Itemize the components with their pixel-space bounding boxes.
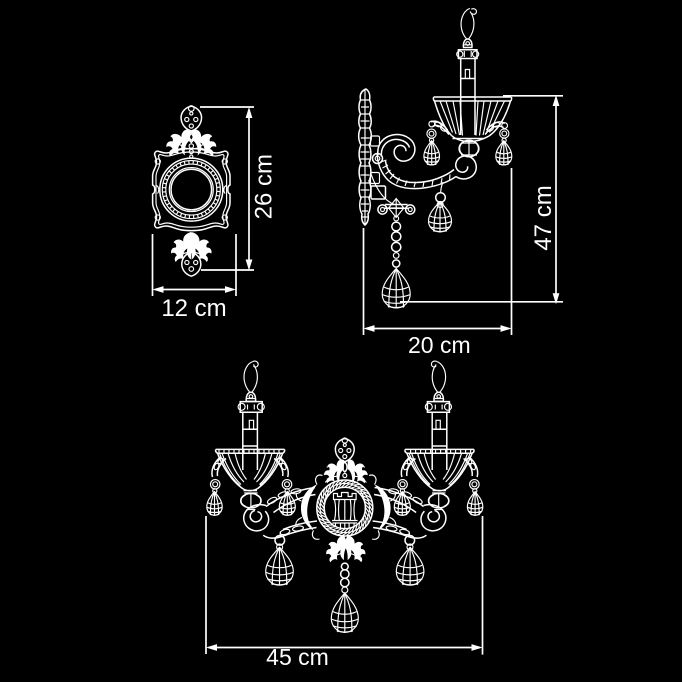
svg-text:45 cm: 45 cm <box>266 644 329 670</box>
svg-text:12 cm: 12 cm <box>161 295 226 322</box>
svg-text:26 cm: 26 cm <box>251 154 278 219</box>
svg-text:20 cm: 20 cm <box>408 332 471 358</box>
svg-text:47 cm: 47 cm <box>530 185 557 250</box>
